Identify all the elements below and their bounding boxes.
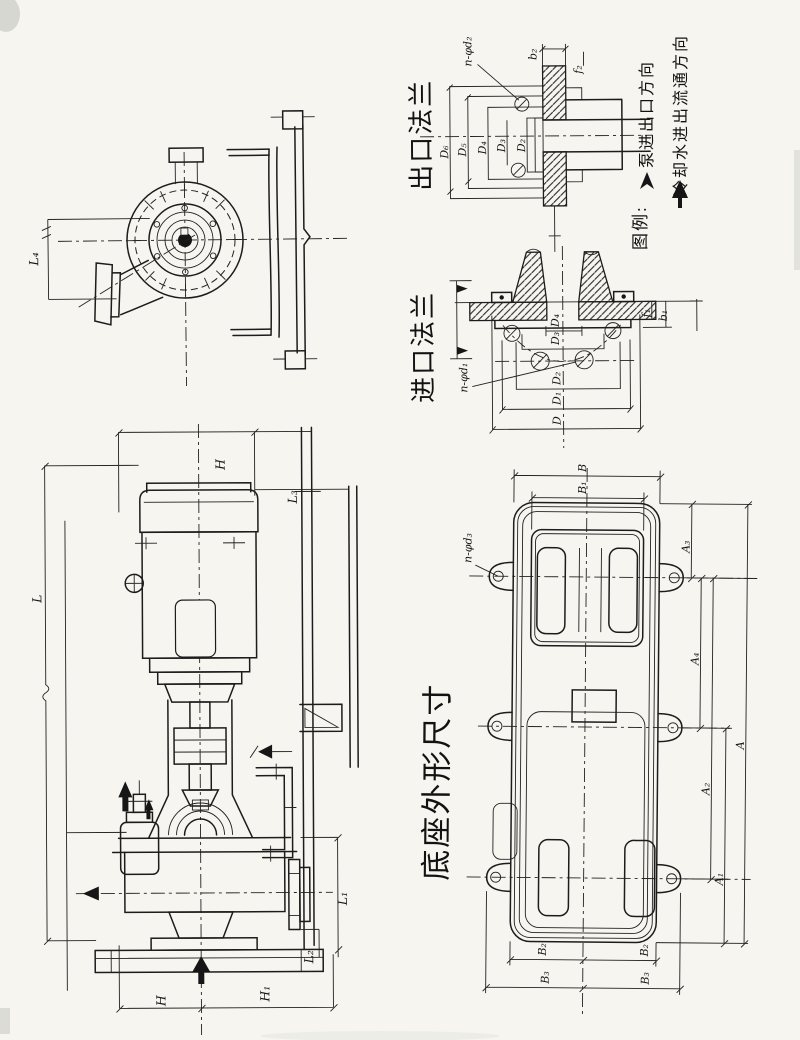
motor (125, 483, 259, 685)
dim-label-b2: b₂ (526, 49, 539, 61)
legend-heading: 图例: (631, 205, 650, 250)
dim-label-l2: L₂ (301, 950, 316, 964)
outlet-thickness-dim (539, 44, 583, 66)
base-title: 底座外形尺寸 (419, 683, 456, 881)
dim-label-l4: L₄ (26, 252, 41, 266)
dim-label-d2i: D₂ (550, 372, 563, 386)
discharge-arrow (83, 887, 99, 901)
scanned-drawing-page: L₄ 出口法兰 D₆ D₅ D₄ D₃ D₂ n-φd₂ (0, 0, 800, 1040)
dim-label-a1: A₁ (713, 873, 726, 886)
wall-bracket (254, 427, 359, 950)
dim-label-l3: L₃ (285, 490, 300, 504)
dim-label-d5: D₅ (456, 143, 469, 158)
drawing-canvas: L₄ 出口法兰 D₆ D₅ D₄ D₃ D₂ n-φd₂ (0, 0, 800, 1040)
dim-label-b1: b₁ (657, 310, 670, 322)
dim-label-d6: D₆ (438, 145, 451, 160)
suction-pipe (78, 235, 196, 325)
dim-label-d4: D₄ (476, 141, 489, 155)
dim-label-h-bottom: H (153, 994, 168, 1007)
view-side-elevation: H L (28, 423, 359, 1036)
outlet-holes-callout: n-φd₂ (461, 36, 474, 66)
dim-label-d1i: D₁ (550, 392, 563, 406)
legend-cooling-flow: 冷却水进出流通方向 (672, 34, 690, 196)
legend: 图例: 泵进出口方向 冷却水进出流通方向 (631, 34, 690, 250)
dim-label-b1b: B₁ (576, 481, 589, 495)
legend-pump-flow: 泵进出口方向 (638, 60, 656, 168)
inlet-neck-wall (512, 252, 546, 302)
base-holes-callout: n-φd₃ (461, 533, 474, 563)
dim-label-f2: f₂ (572, 65, 585, 75)
dim-label-di: D (551, 416, 564, 426)
terminal-box (175, 600, 215, 657)
inlet-holes-callout: n-φd₁ (457, 363, 470, 393)
inlet-flange-title: 进口法兰 (409, 291, 439, 403)
pump-flow-arrow-icon (640, 172, 654, 189)
dim-label-d3i: D₃ (549, 332, 562, 346)
view-base-plate: 底座外形尺寸 n-φd₃ (417, 462, 758, 1016)
view-inlet-flange: 进口法兰 n-φd₁ (408, 245, 703, 449)
dim-label-a2: A₂ (699, 783, 712, 796)
dim-label-d4i: D₄ (549, 314, 562, 328)
cooling-pipe (250, 744, 297, 861)
dim-label-a: A (734, 741, 747, 750)
dim-label-a4: A₄ (688, 653, 701, 666)
inlet-neck-wall (578, 252, 612, 302)
hand-hole (572, 690, 616, 722)
dim-label-d3: D₃ (495, 139, 508, 153)
outlet-flange-title: 出口法兰 (407, 79, 437, 191)
dim-label-d2: D₂ (515, 139, 528, 153)
dim-label-b2a: B₂ (536, 943, 549, 957)
dim-label-a3: A₃ (679, 540, 692, 553)
dim-label-h1: H₁ (257, 986, 272, 1003)
dim-label-b3a: B₃ (539, 971, 552, 985)
dim-l-left (42, 462, 142, 991)
top-pad (169, 148, 203, 162)
dim-label-b3b: B₃ (639, 972, 652, 986)
dim-label-l1: L₁ (335, 892, 350, 906)
view-pump-end: L₄ (25, 110, 350, 387)
base-right-dims (656, 501, 752, 948)
dim-label-f1: f₁ (640, 309, 653, 319)
view-outlet-flange: 出口法兰 D₆ D₅ D₄ D₃ D₂ n-φd₂ (406, 35, 653, 253)
dim-label-l: L (29, 595, 44, 604)
dim-label-h-top: H (213, 458, 228, 471)
dim-label-b: B (576, 464, 589, 473)
dim-label-b2b: B₂ (638, 944, 651, 958)
inlet-thickness-dim (450, 281, 473, 359)
suction-arrow (192, 956, 210, 984)
support-bracket (227, 111, 318, 370)
inlet-flange-plate (470, 302, 547, 321)
